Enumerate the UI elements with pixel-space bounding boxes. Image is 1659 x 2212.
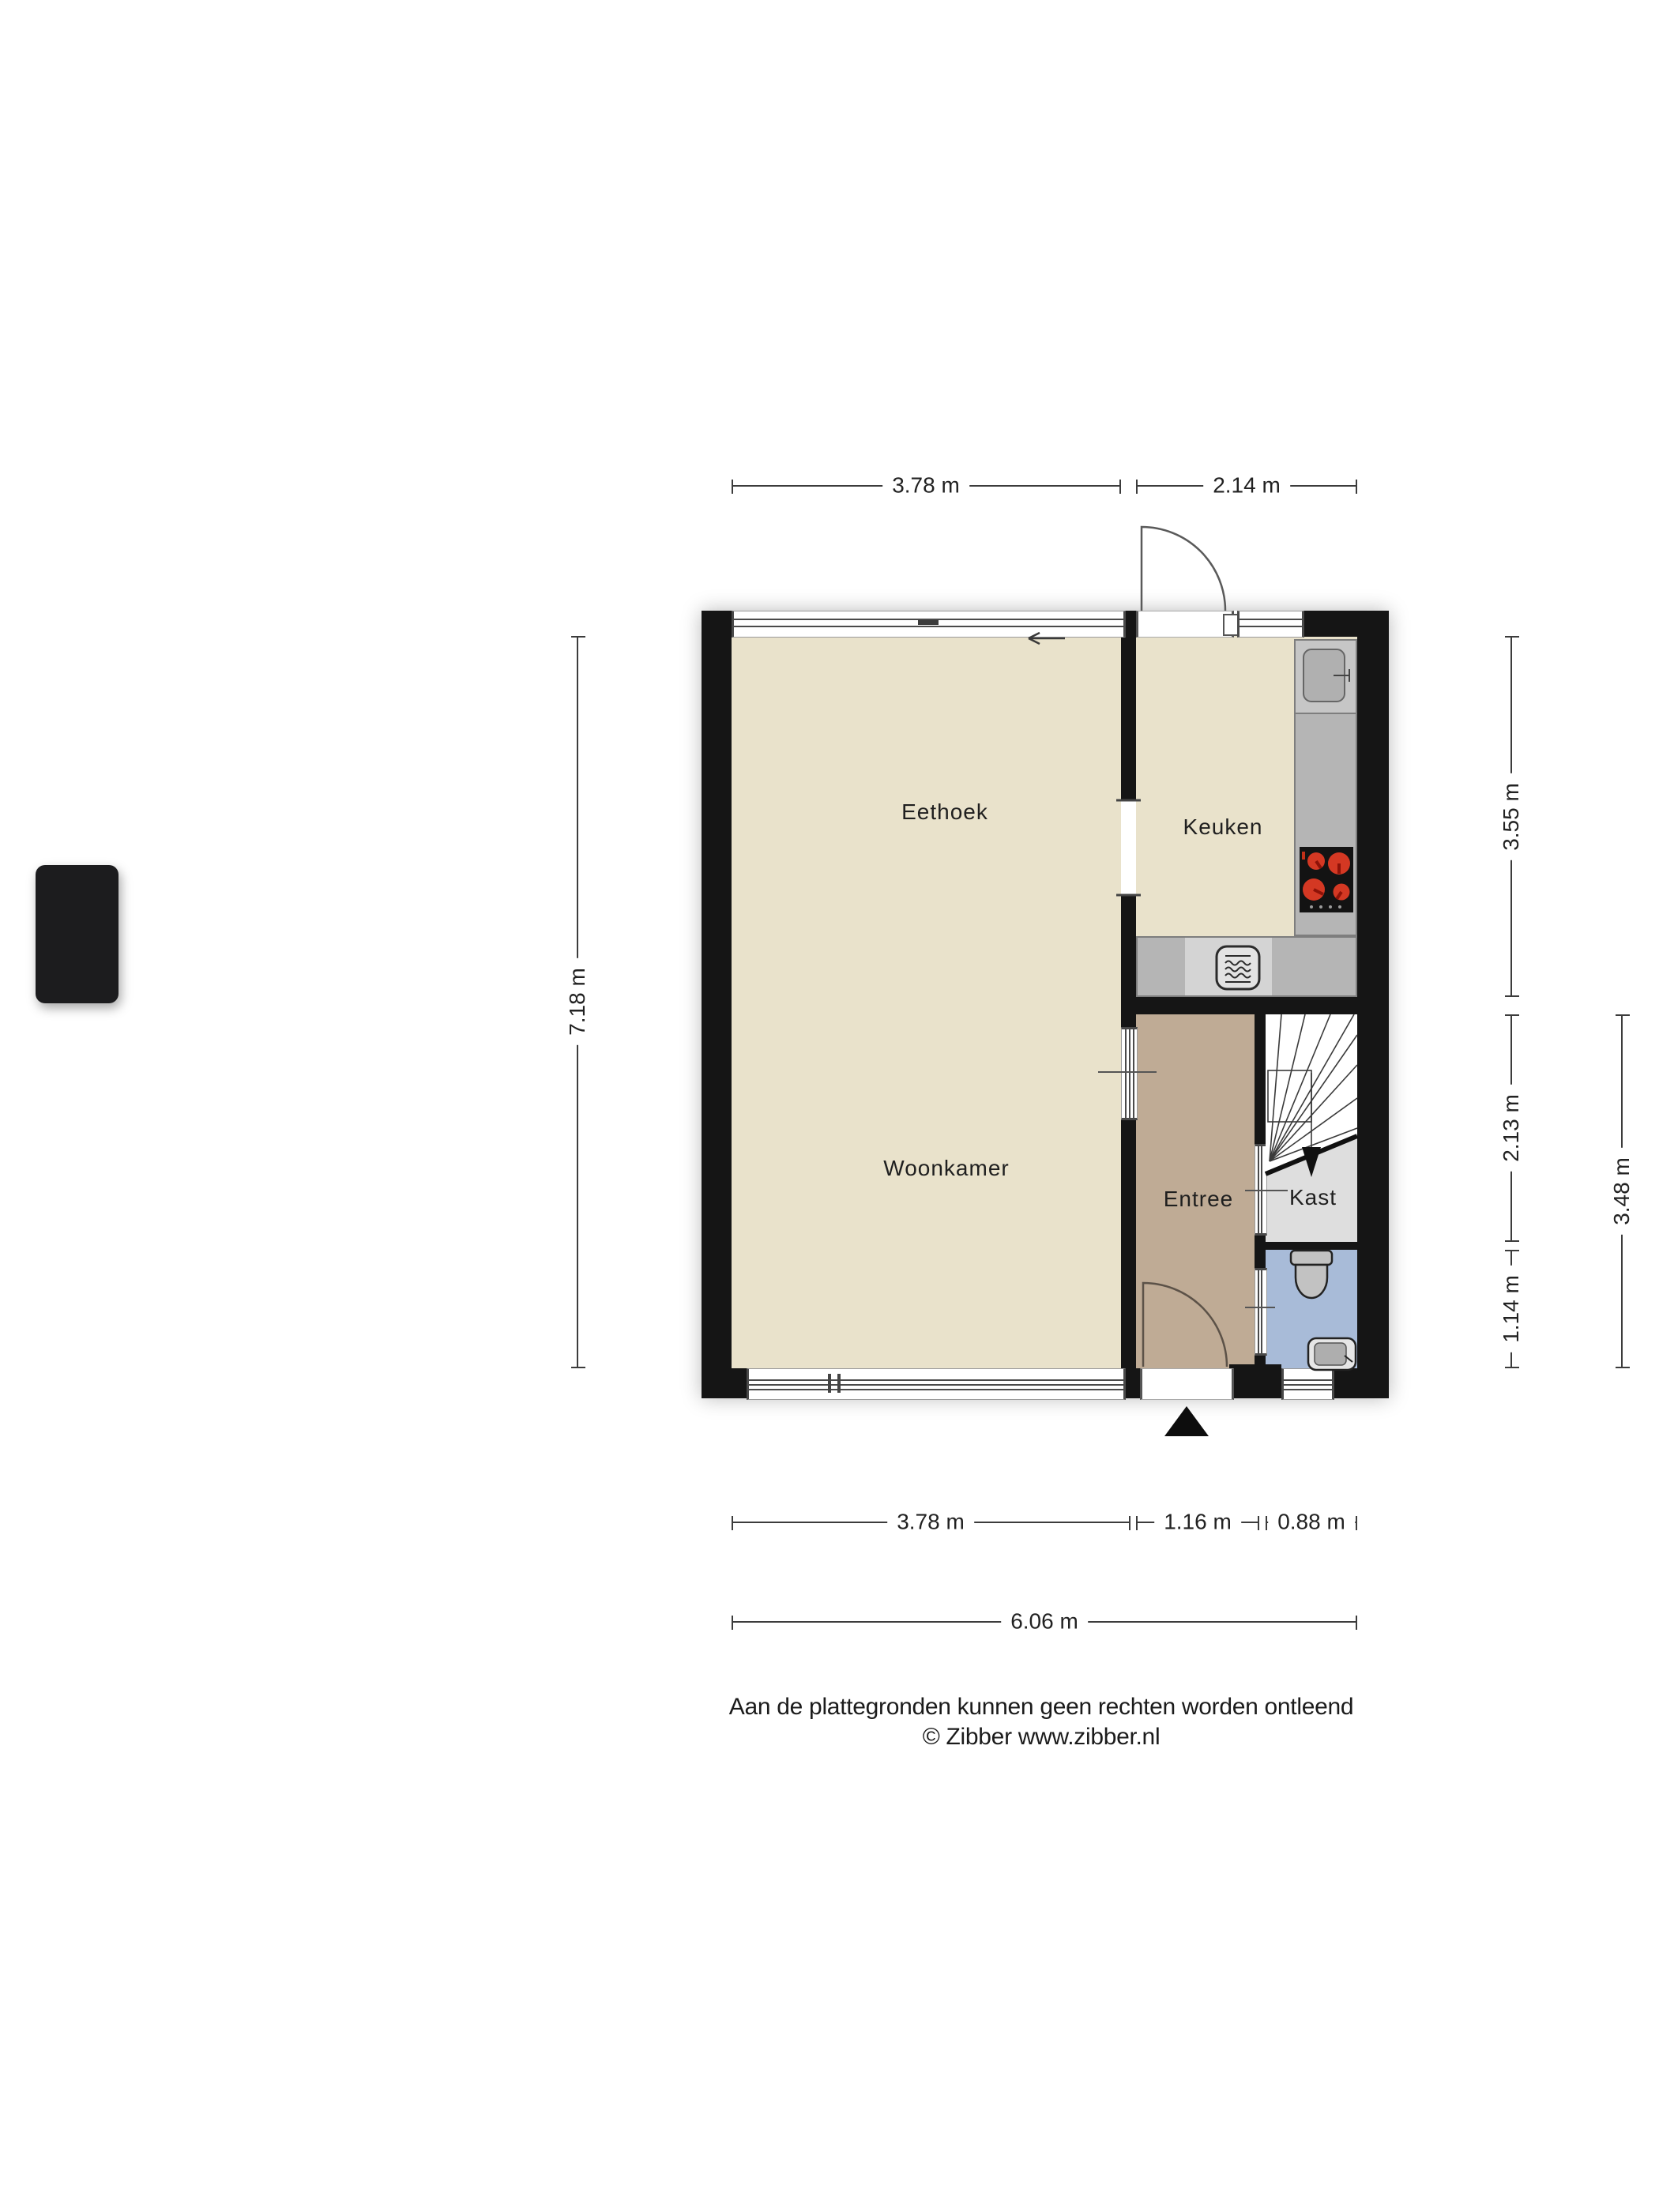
stairs-direction-arrowhead <box>1302 1147 1321 1177</box>
window-joint-mark <box>828 1374 841 1393</box>
footer-copyright: © Zibber www.zibber.nl <box>923 1724 1161 1751</box>
plan-vector-overlay <box>0 0 1659 2212</box>
wash-basin-icon <box>1308 1338 1356 1370</box>
dim-total-width: 6.06 m <box>1001 1607 1088 1635</box>
dim-bottom-toilet: 0.88 m <box>1268 1507 1355 1536</box>
dim-left: 7.18 m <box>563 958 592 1045</box>
footer-disclaimer: Aan de plattegronden kunnen geen rechten… <box>729 1694 1354 1721</box>
room-label-woonkamer: Woonkamer <box>883 1156 1009 1181</box>
dim-right-keuken: 3.55 m <box>1497 773 1525 860</box>
dim-top-right: 2.14 m <box>1203 471 1290 499</box>
floorplan-page: Eethoek Keuken Woonkamer Entree Kast 3.7… <box>0 0 1659 2212</box>
dim-bottom-entree: 1.16 m <box>1154 1507 1241 1536</box>
dim-right-hal: 2.13 m <box>1497 1085 1525 1172</box>
room-label-kast: Kast <box>1289 1185 1337 1210</box>
dim-bottom-woonkamer: 3.78 m <box>887 1507 974 1536</box>
dim-right-toilet: 1.14 m <box>1497 1266 1525 1352</box>
dim-right-outer: 3.48 m <box>1608 1148 1636 1235</box>
entrance-arrow-icon <box>1164 1406 1209 1436</box>
dim-top-left: 3.78 m <box>882 471 969 499</box>
kitchen-sink-icon <box>1303 649 1349 702</box>
room-label-eethoek: Eethoek <box>901 799 988 825</box>
door-swing-icon-entree <box>1143 1283 1227 1367</box>
stove-icon <box>1300 847 1353 912</box>
window-frame-mark <box>918 620 939 625</box>
room-label-entree: Entree <box>1164 1187 1234 1212</box>
direction-arrow-icon <box>1029 633 1065 644</box>
oven-icon <box>1217 946 1259 989</box>
room-label-keuken: Keuken <box>1183 814 1263 840</box>
door-swing-icon-keuken <box>1142 527 1225 611</box>
toilet-icon <box>1291 1251 1332 1298</box>
passage-jamb-marks <box>1116 800 1141 895</box>
